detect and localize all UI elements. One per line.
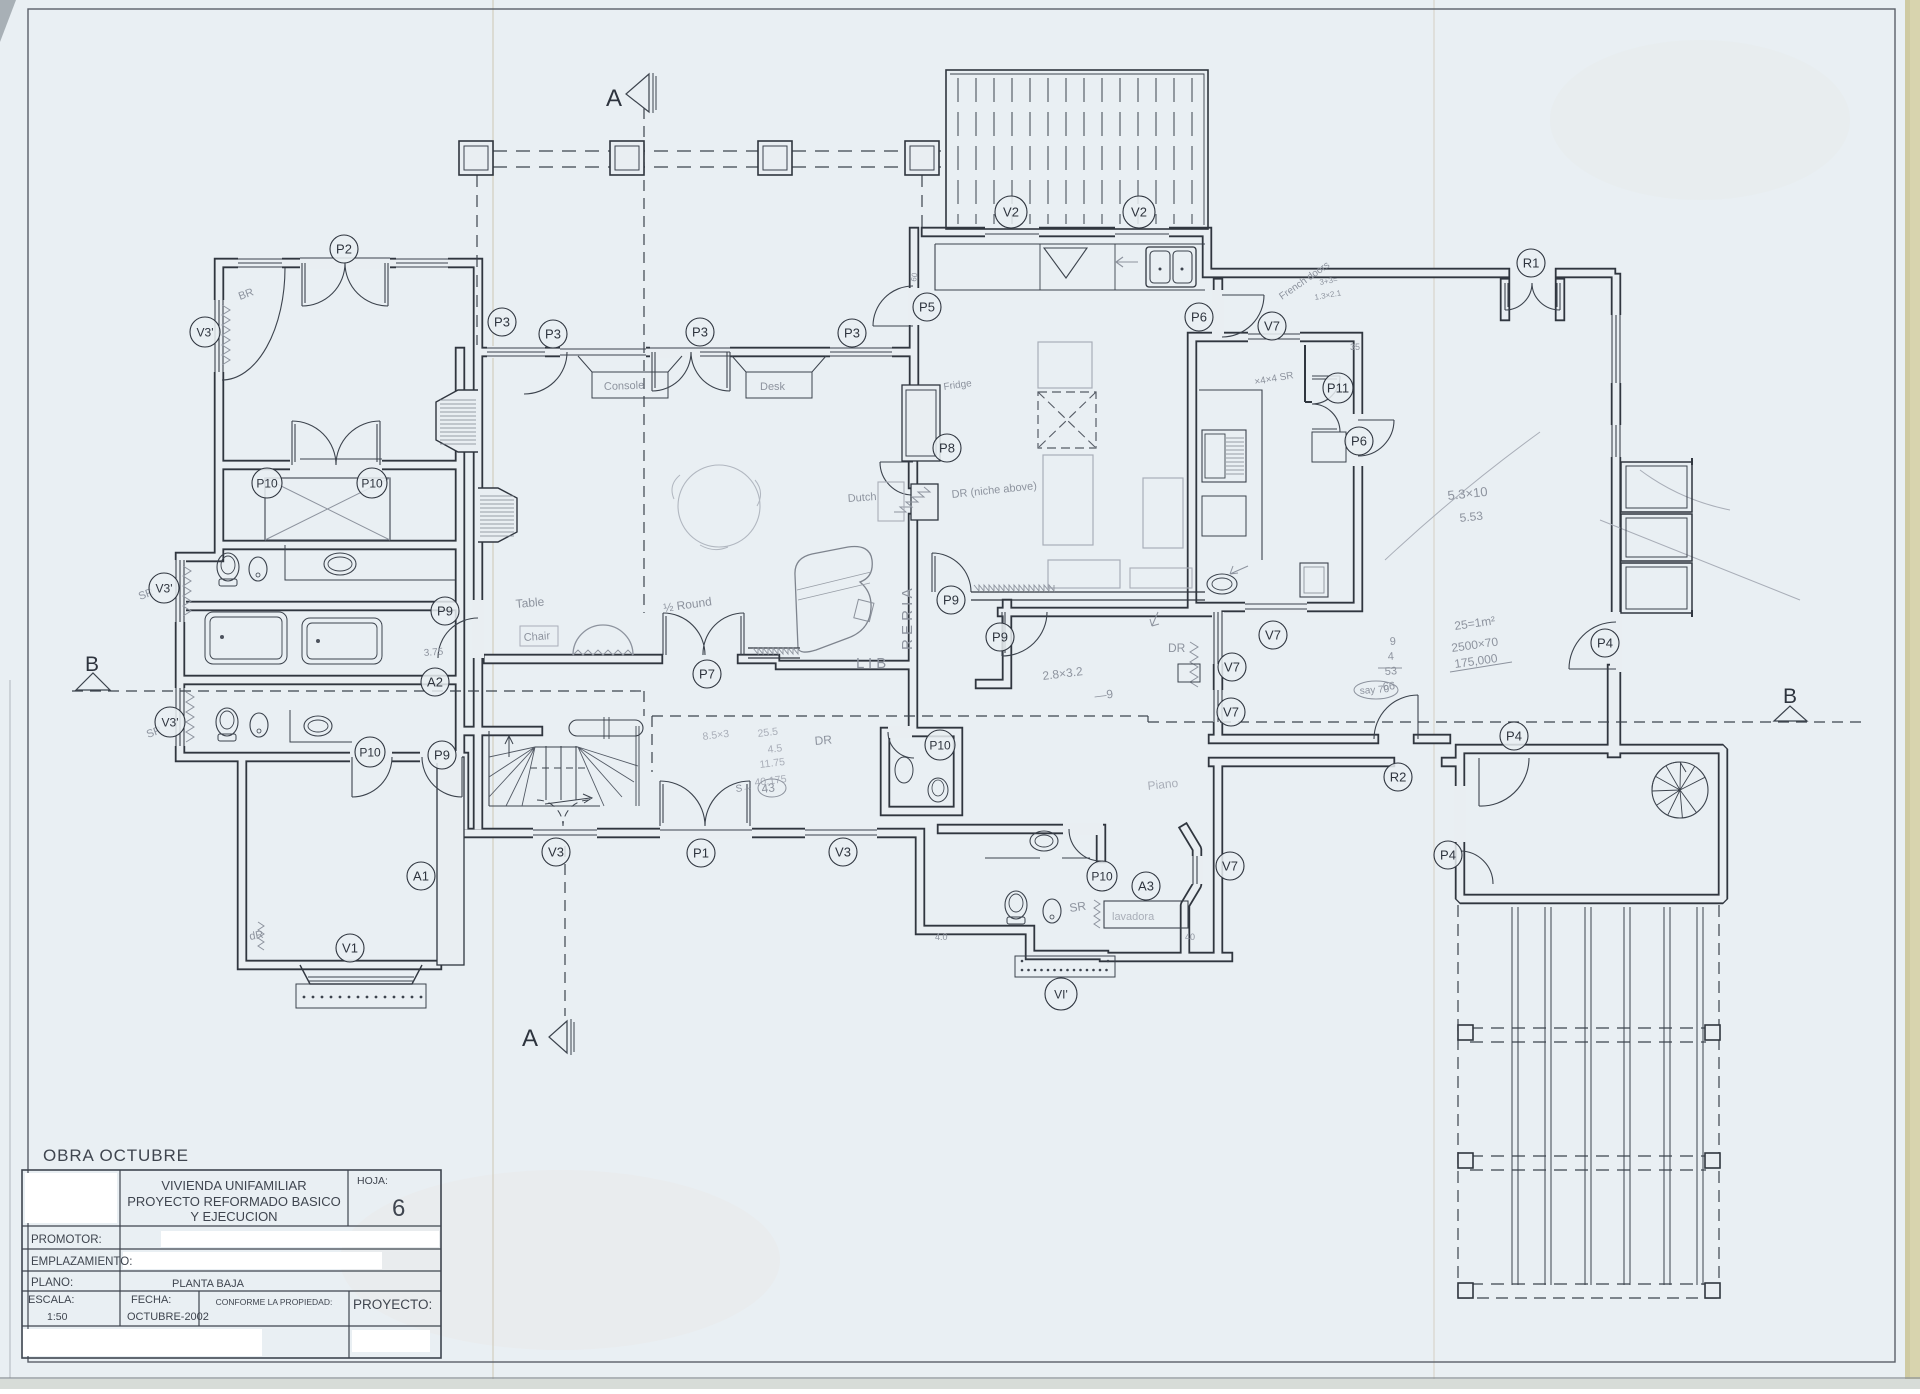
svg-text:R1: R1 — [1523, 256, 1540, 271]
svg-text:P4: P4 — [1440, 848, 1456, 863]
svg-text:V2: V2 — [1003, 205, 1019, 220]
svg-text:R2: R2 — [1390, 770, 1407, 785]
svg-text:dR: dR — [248, 929, 264, 943]
svg-text:P6: P6 — [1191, 310, 1207, 325]
svg-text:P3: P3 — [844, 326, 860, 341]
svg-text:S→: S→ — [735, 782, 753, 795]
svg-text:40: 40 — [1185, 932, 1195, 942]
svg-text:9: 9 — [1389, 636, 1396, 648]
svg-text:Chair: Chair — [523, 630, 550, 644]
svg-text:VIVIENDA UNIFAMILIAR: VIVIENDA UNIFAMILIAR — [161, 1178, 306, 1193]
svg-text:V2: V2 — [1131, 205, 1147, 220]
svg-text:V3': V3' — [156, 581, 173, 595]
svg-text:P4: P4 — [1597, 636, 1613, 651]
svg-text:L I B: L I B — [856, 655, 886, 672]
svg-text:—9: —9 — [1094, 687, 1115, 703]
svg-text:V7: V7 — [1222, 859, 1238, 874]
svg-text:P9: P9 — [992, 630, 1008, 645]
svg-text:Console: Console — [604, 380, 645, 393]
svg-text:SR: SR — [1068, 899, 1087, 915]
svg-text:PROYECTO REFORMADO BASICO: PROYECTO REFORMADO BASICO — [127, 1194, 341, 1209]
svg-text:P7: P7 — [699, 667, 715, 682]
svg-text:P8: P8 — [939, 441, 955, 456]
svg-text:P5: P5 — [919, 300, 935, 315]
svg-text:Dutch: Dutch — [847, 491, 877, 505]
svg-text:43: 43 — [761, 780, 776, 796]
svg-text:35: 35 — [1350, 342, 1360, 352]
svg-text:B: B — [85, 653, 99, 676]
svg-text:5.53: 5.53 — [1459, 509, 1484, 525]
svg-text:VI': VI' — [1054, 987, 1068, 1001]
svg-text:A1: A1 — [413, 869, 429, 884]
svg-text:A: A — [522, 1025, 538, 1052]
svg-text:V3: V3 — [548, 845, 564, 860]
svg-text:P10: P10 — [1091, 869, 1113, 883]
svg-text:V3: V3 — [835, 845, 851, 860]
svg-text:DR: DR — [814, 733, 833, 748]
svg-text:EMPLAZAMIENTO:: EMPLAZAMIENTO: — [31, 1256, 132, 1268]
svg-text:DR: DR — [1168, 641, 1186, 655]
svg-text:4: 4 — [1387, 651, 1394, 663]
svg-text:1:50: 1:50 — [47, 1311, 68, 1323]
svg-text:A: A — [606, 85, 622, 112]
svg-text:V1: V1 — [342, 941, 358, 956]
svg-text:lavadora: lavadora — [1112, 911, 1155, 923]
svg-text:B: B — [1783, 685, 1797, 708]
svg-text:Y EJECUCION: Y EJECUCION — [190, 1209, 277, 1224]
svg-text:P10: P10 — [361, 476, 383, 490]
svg-text:Table: Table — [515, 595, 545, 611]
svg-text:4.5: 4.5 — [767, 742, 783, 756]
svg-text:V3': V3' — [197, 325, 214, 339]
svg-text:PLANTA BAJA: PLANTA BAJA — [172, 1278, 245, 1290]
svg-text:PROMOTOR:: PROMOTOR: — [31, 1234, 102, 1246]
svg-text:P3: P3 — [494, 315, 510, 330]
svg-text:A2: A2 — [427, 675, 443, 690]
svg-text:V3': V3' — [162, 715, 179, 729]
svg-text:P10: P10 — [359, 745, 381, 759]
svg-text:P3: P3 — [692, 325, 708, 340]
svg-text:P9: P9 — [437, 604, 453, 619]
svg-text:P10: P10 — [256, 476, 278, 490]
svg-text:25.5: 25.5 — [757, 726, 779, 740]
svg-text:P9: P9 — [434, 748, 450, 763]
svg-text:FECHA:: FECHA: — [131, 1294, 171, 1306]
svg-text:P10: P10 — [929, 738, 951, 752]
svg-text:3.75: 3.75 — [423, 647, 444, 659]
svg-text:53: 53 — [1384, 665, 1397, 678]
svg-text:V7: V7 — [1223, 705, 1239, 720]
svg-text:P3: P3 — [545, 327, 561, 342]
svg-text:A3: A3 — [1138, 879, 1154, 894]
svg-text:4.0: 4.0 — [935, 932, 948, 942]
svg-text:OBRA OCTUBRE: OBRA OCTUBRE — [43, 1146, 189, 1165]
svg-text:Desk: Desk — [760, 381, 786, 393]
svg-text:V7: V7 — [1264, 319, 1280, 334]
svg-text:PLANO:: PLANO: — [31, 1277, 73, 1289]
svg-text:OCTUBRE-2002: OCTUBRE-2002 — [127, 1311, 209, 1323]
svg-text:R E R I A: R E R I A — [899, 588, 916, 650]
svg-text:6: 6 — [392, 1195, 405, 1222]
svg-text:V7: V7 — [1265, 628, 1281, 643]
svg-text:CONFORME LA PROPIEDAD:: CONFORME LA PROPIEDAD: — [216, 1297, 333, 1307]
svg-text:PROYECTO:: PROYECTO: — [353, 1297, 432, 1312]
svg-text:HOJA:: HOJA: — [357, 1175, 388, 1187]
svg-text:P1: P1 — [693, 846, 709, 861]
svg-text:P4: P4 — [1506, 729, 1522, 744]
svg-text:P6: P6 — [1351, 434, 1367, 449]
svg-text:say 70: say 70 — [1359, 684, 1390, 697]
svg-text:P11: P11 — [1327, 381, 1349, 396]
svg-text:P9: P9 — [943, 593, 959, 608]
svg-text:ESCALA:: ESCALA: — [28, 1294, 74, 1306]
svg-text:V7: V7 — [1224, 660, 1240, 675]
svg-text:P2: P2 — [336, 242, 352, 257]
